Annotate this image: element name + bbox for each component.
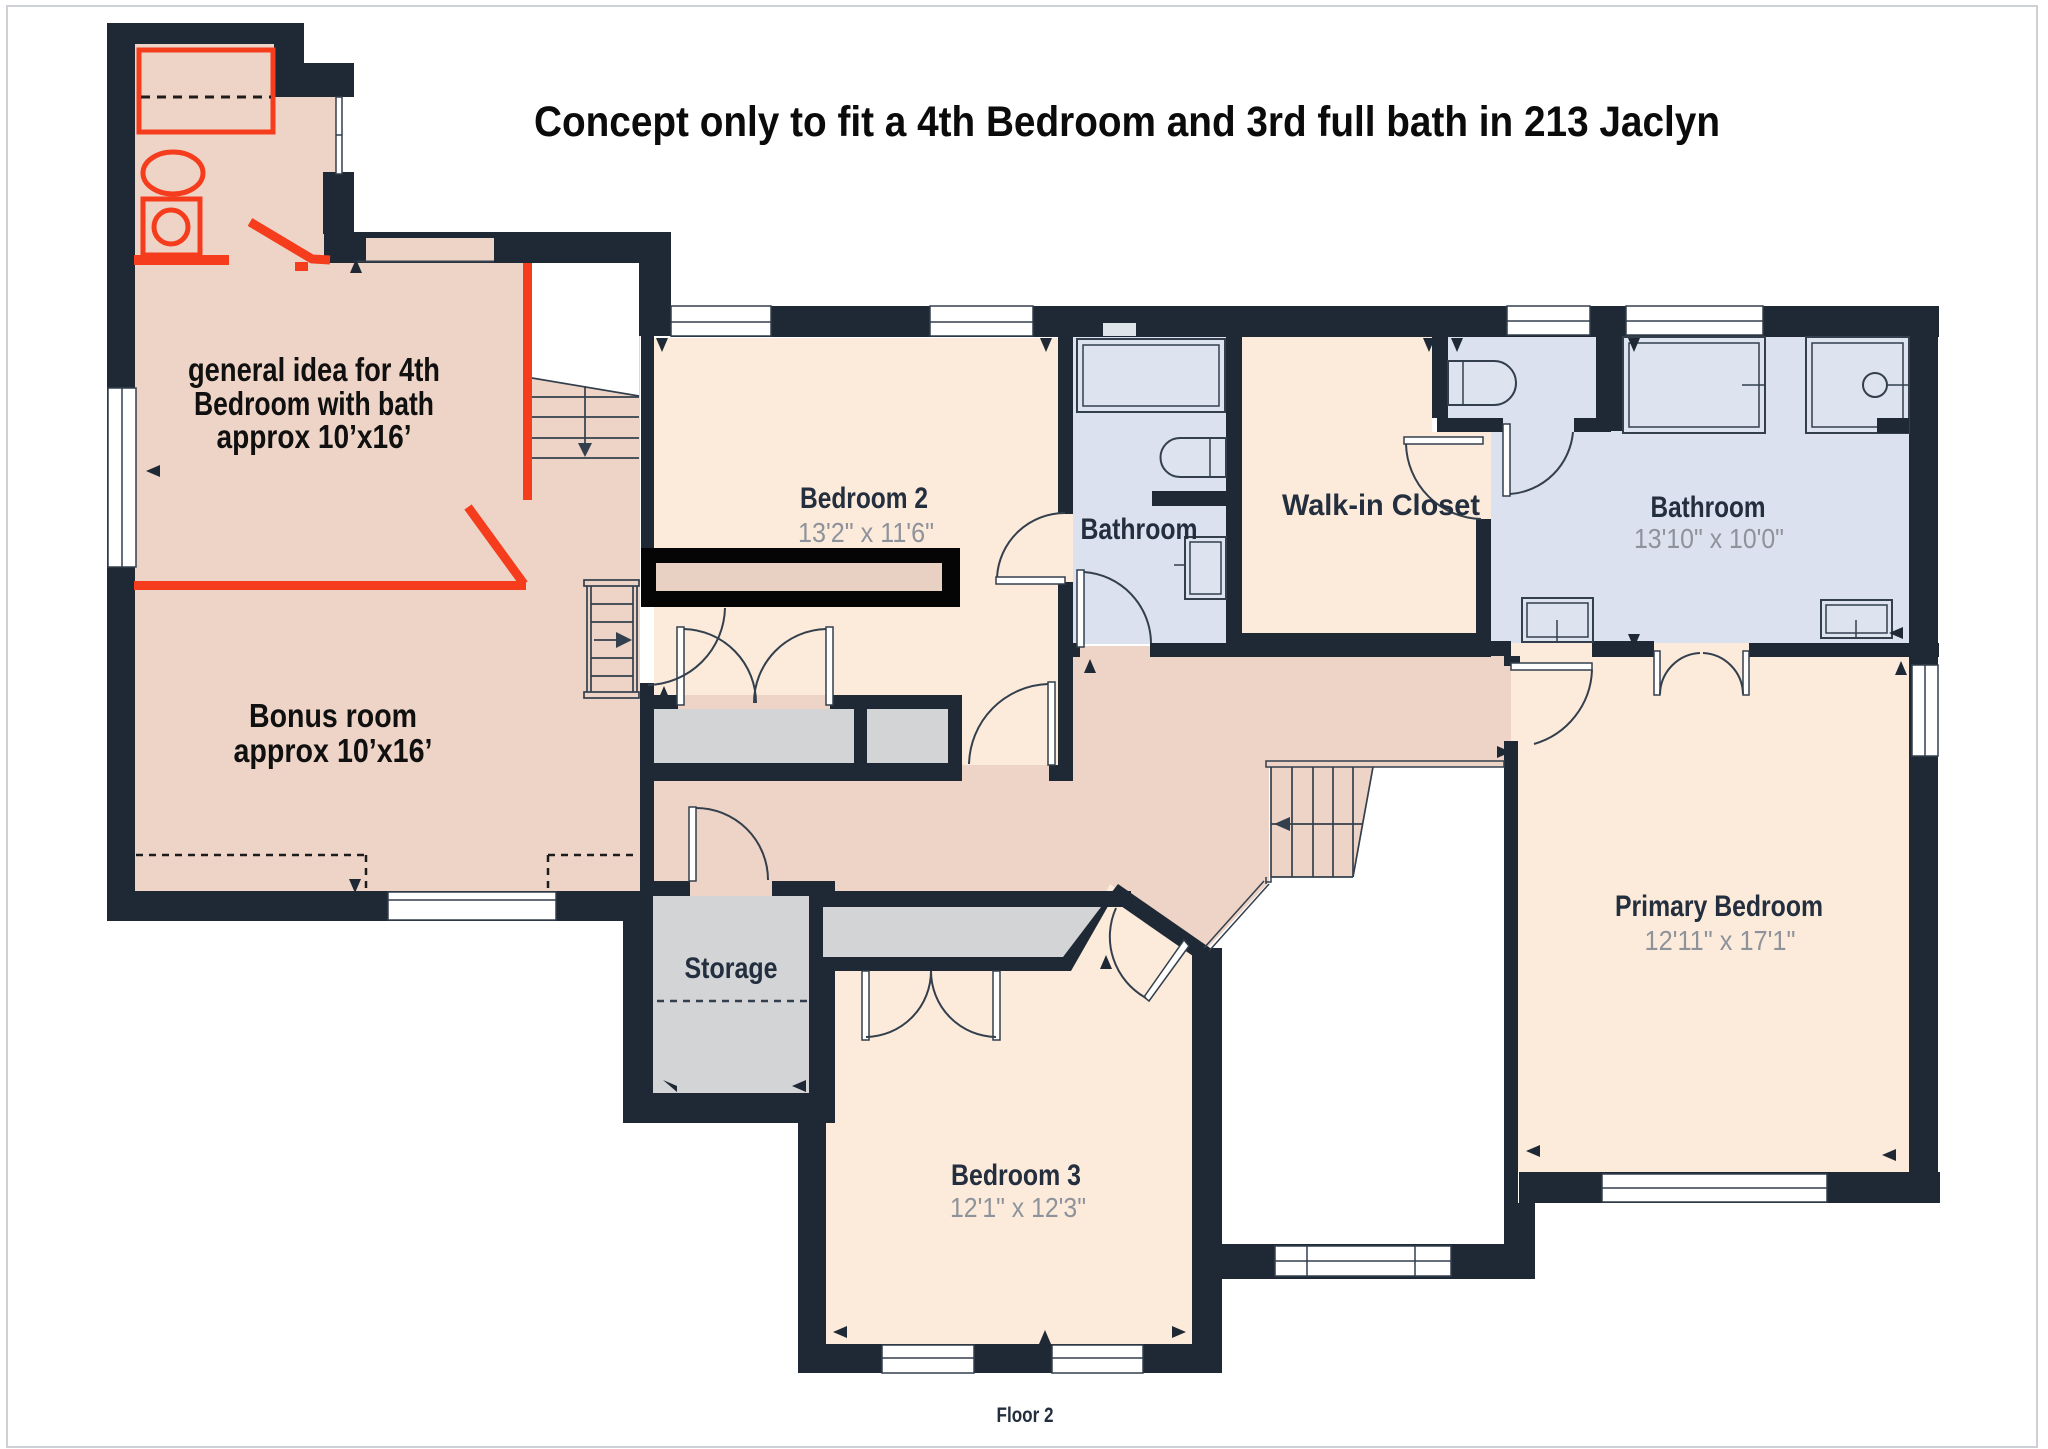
svg-text:Walk-in Closet: Walk-in Closet <box>1282 489 1480 522</box>
svg-text:Bedroom 2: Bedroom 2 <box>800 482 928 515</box>
svg-text:Bedroom with bath: Bedroom with bath <box>194 385 434 422</box>
svg-text:Storage: Storage <box>685 952 778 985</box>
svg-text:general idea for 4th: general idea for 4th <box>188 351 440 388</box>
svg-text:Bathroom: Bathroom <box>1081 513 1198 546</box>
svg-text:Bonus room: Bonus room <box>249 697 417 734</box>
svg-text:Bathroom: Bathroom <box>1651 491 1766 524</box>
svg-text:Concept only to fit a 4th Bedr: Concept only to fit a 4th Bedroom and 3r… <box>534 98 1720 146</box>
svg-text:13'10" x 10'0": 13'10" x 10'0" <box>1634 523 1784 554</box>
svg-text:12'1" x 12'3": 12'1" x 12'3" <box>950 1192 1086 1223</box>
svg-text:13'2" x 11'6": 13'2" x 11'6" <box>798 517 934 548</box>
svg-text:12'11" x 17'1": 12'11" x 17'1" <box>1645 925 1796 956</box>
svg-text:Bedroom 3: Bedroom 3 <box>951 1159 1081 1192</box>
svg-text:approx 10’x16’: approx 10’x16’ <box>234 732 433 769</box>
svg-text:Floor 2: Floor 2 <box>997 1404 1054 1427</box>
svg-text:approx 10’x16’: approx 10’x16’ <box>217 418 412 455</box>
svg-text:Primary Bedroom: Primary Bedroom <box>1615 890 1823 923</box>
